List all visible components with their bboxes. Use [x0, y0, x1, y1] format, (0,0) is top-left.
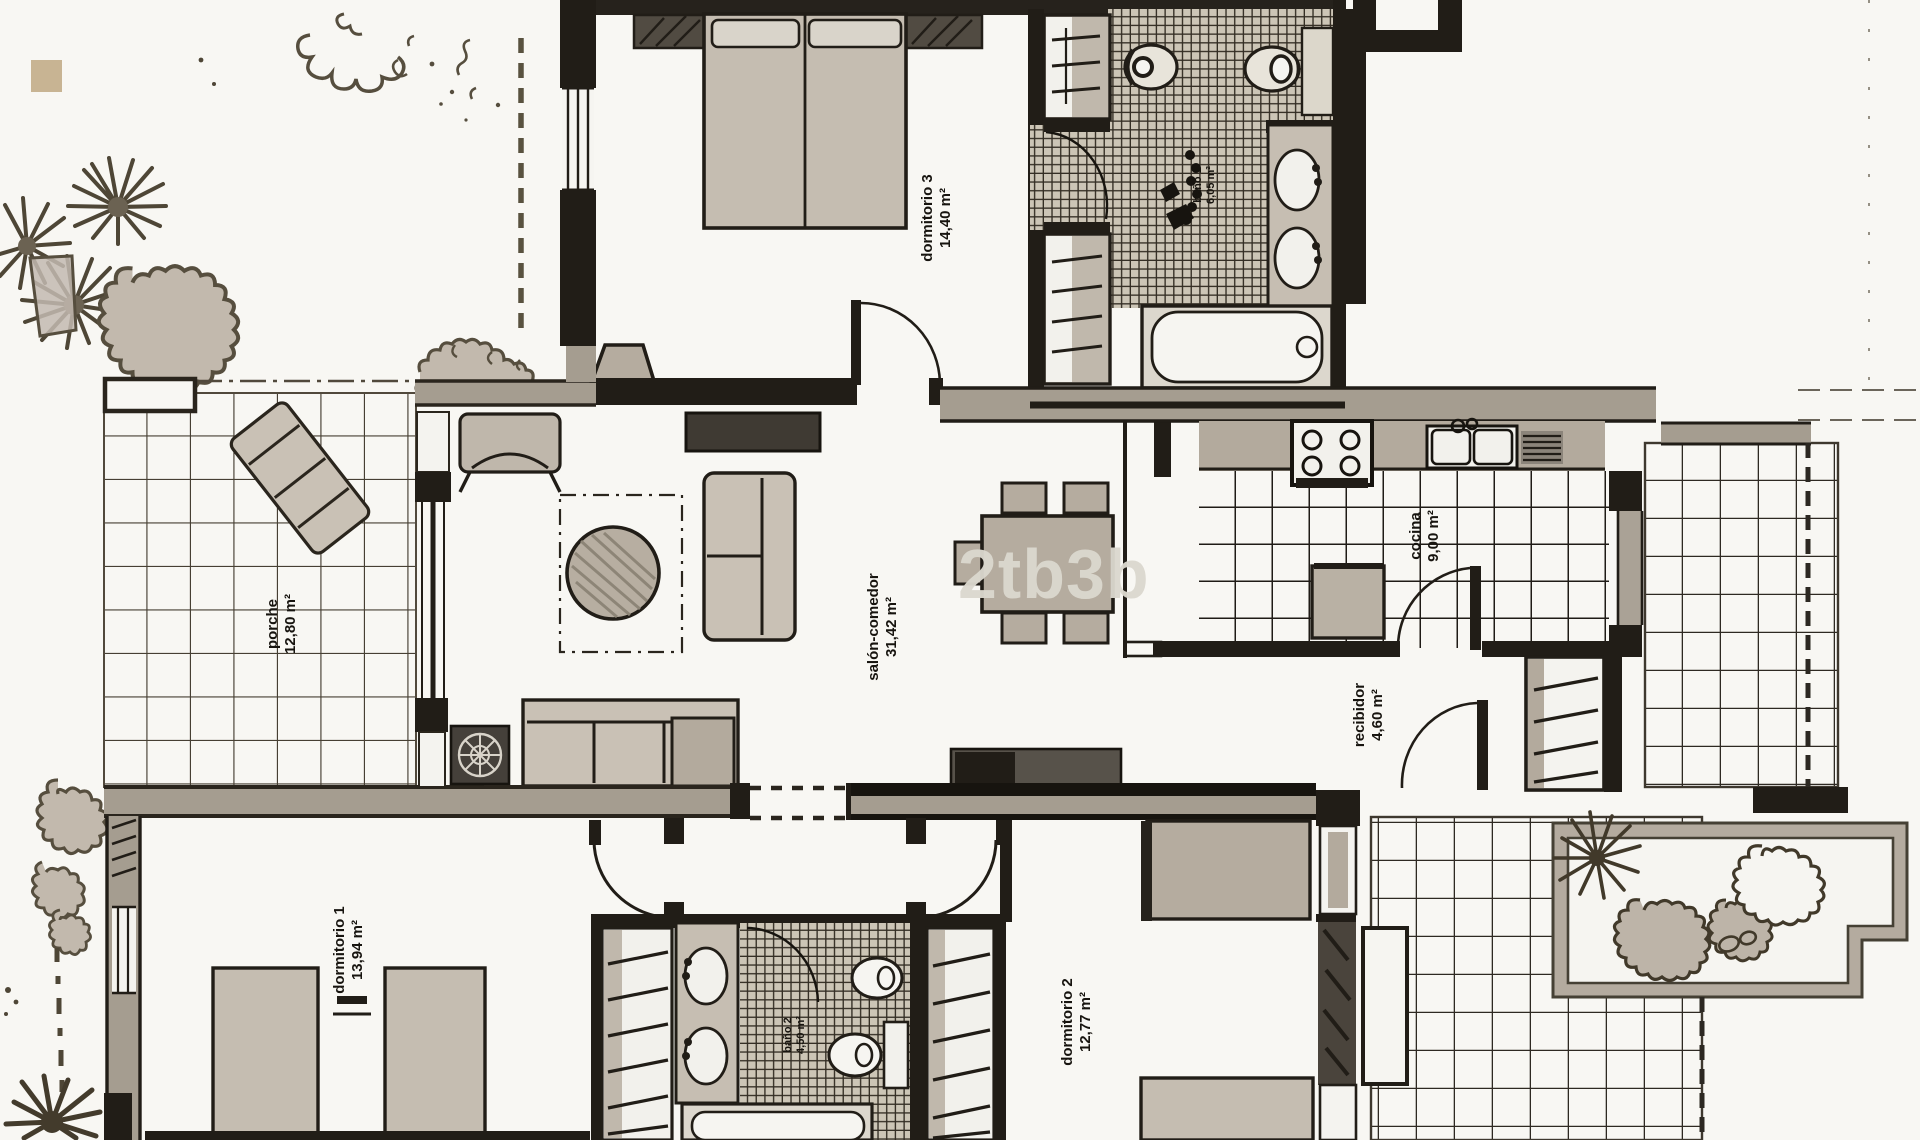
svg-text:13,94 m²: 13,94 m²: [349, 920, 366, 980]
svg-text:baño 1: baño 1: [1192, 167, 1204, 202]
svg-text:dormitorio 1: dormitorio 1: [331, 906, 348, 994]
svg-text:4,50 m²: 4,50 m²: [795, 1016, 807, 1054]
svg-text:12,80 m²: 12,80 m²: [282, 594, 299, 654]
svg-text:recibidor: recibidor: [1351, 683, 1368, 747]
svg-text:baño 2: baño 2: [782, 1017, 794, 1052]
svg-text:31,42 m²: 31,42 m²: [883, 597, 900, 657]
svg-text:12,77 m²: 12,77 m²: [1077, 992, 1094, 1052]
svg-text:2tb3b: 2tb3b: [958, 535, 1150, 613]
svg-text:dormitorio 3: dormitorio 3: [919, 174, 936, 262]
svg-text:14,40 m²: 14,40 m²: [937, 188, 954, 248]
svg-text:dormitorio 2: dormitorio 2: [1059, 978, 1076, 1066]
svg-text:porche: porche: [264, 599, 281, 649]
svg-text:4,60 m²: 4,60 m²: [1369, 689, 1386, 741]
svg-text:salón-comedor: salón-comedor: [865, 573, 882, 681]
svg-text:6,05 m²: 6,05 m²: [1205, 166, 1217, 204]
svg-text:9,00 m²: 9,00 m²: [1425, 510, 1442, 562]
svg-text:cocina: cocina: [1407, 512, 1424, 560]
